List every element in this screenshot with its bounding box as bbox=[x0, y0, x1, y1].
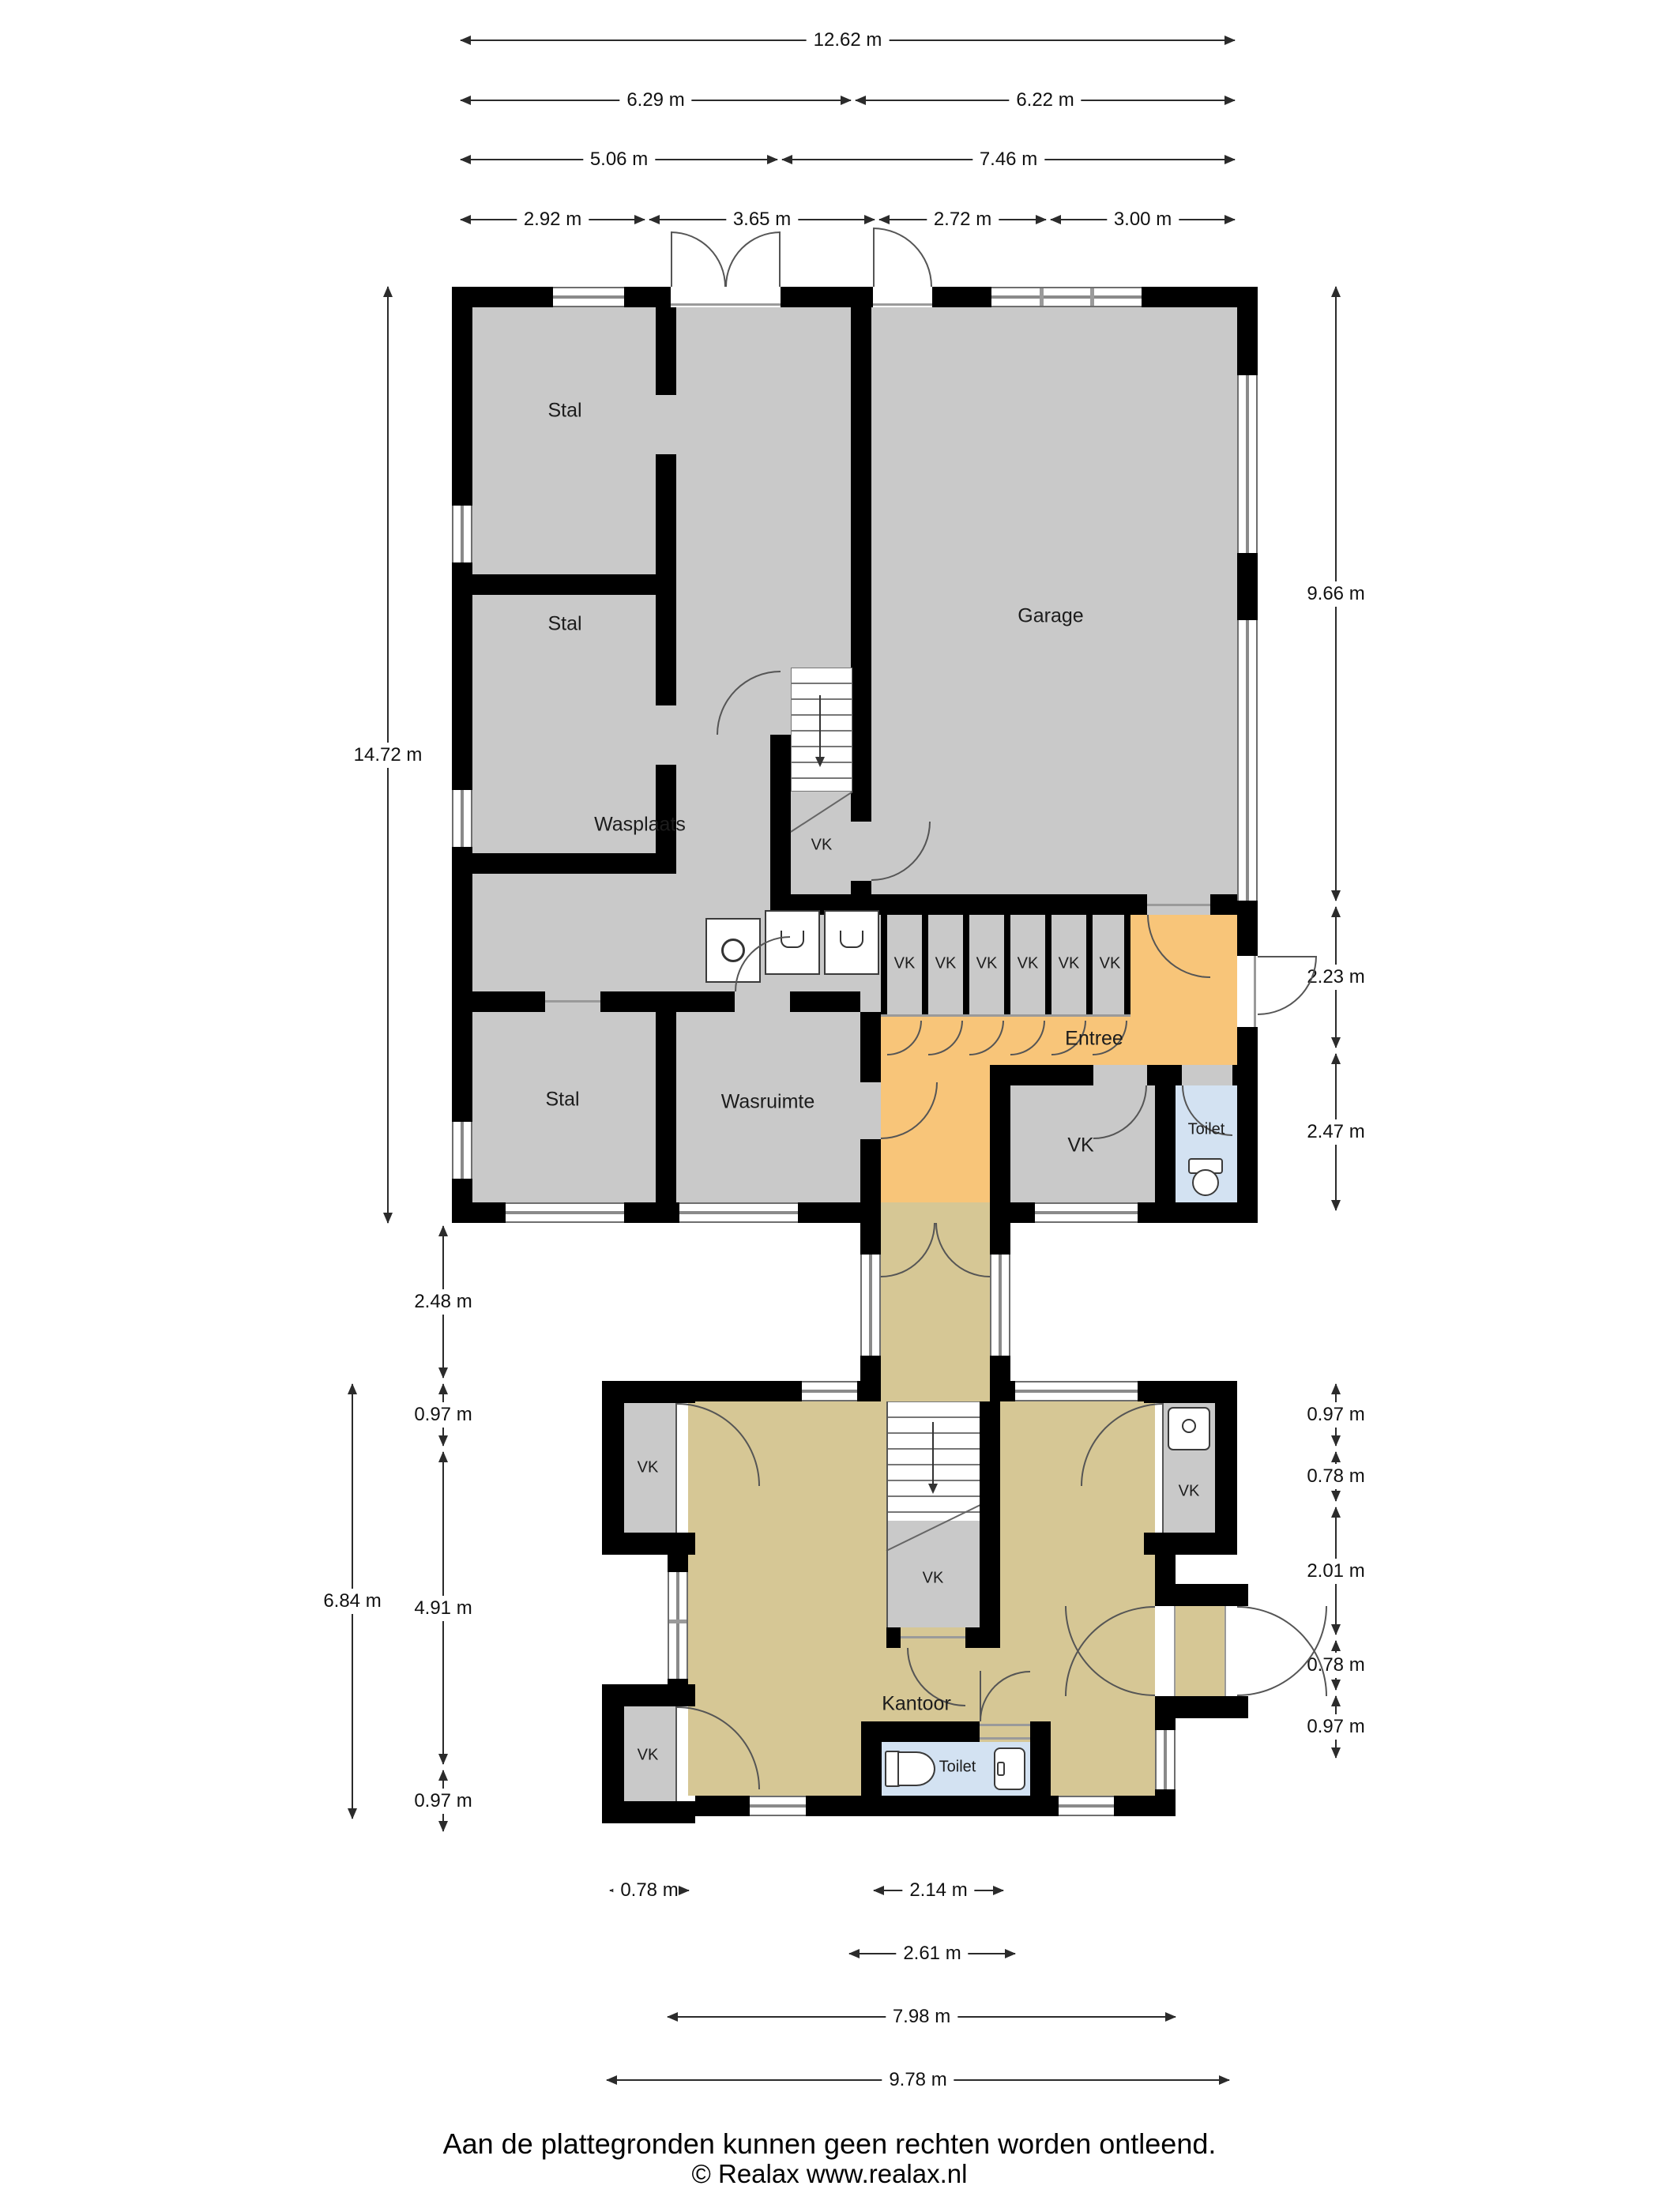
room-label-vk: VK bbox=[638, 1747, 659, 1765]
wall bbox=[602, 1801, 695, 1823]
stair-side-line bbox=[886, 1401, 888, 1627]
room-label-vk: VK bbox=[935, 955, 957, 973]
sink-drain-icon bbox=[1182, 1419, 1196, 1433]
wall bbox=[676, 991, 735, 1012]
dim-label: 2.01 m bbox=[1301, 1559, 1370, 1584]
wall bbox=[1232, 1065, 1237, 1085]
dim-bottom-261: 2.61 m bbox=[849, 1953, 1015, 1954]
dim-label: 2.61 m bbox=[896, 1943, 968, 1965]
dim-label: 0.78 m bbox=[613, 1879, 685, 1902]
dim-right-078a: 0.78 m bbox=[1335, 1452, 1337, 1501]
dim-label: 2.72 m bbox=[927, 209, 999, 231]
wall bbox=[965, 1627, 1000, 1648]
wall bbox=[770, 735, 791, 894]
dim-right-223: 2.23 m bbox=[1335, 907, 1337, 1048]
dim-label: 2.47 m bbox=[1301, 1119, 1370, 1145]
dim-right-966: 9.66 m bbox=[1335, 287, 1337, 901]
dim-bottom-798: 7.98 m bbox=[668, 2016, 1176, 2018]
dim-label: 2.48 m bbox=[408, 1289, 477, 1315]
dim-label: 3.00 m bbox=[1107, 209, 1179, 231]
window bbox=[1237, 620, 1258, 901]
wall bbox=[1030, 1721, 1051, 1816]
wall bbox=[790, 991, 860, 1012]
dim-bottom-214: 2.14 m bbox=[874, 1890, 1003, 1891]
dim-seg2: 3.65 m bbox=[649, 219, 875, 220]
wall bbox=[990, 1085, 1010, 1202]
window bbox=[452, 506, 472, 562]
door-threshold bbox=[1174, 1606, 1176, 1696]
wall bbox=[1237, 553, 1258, 620]
wall bbox=[472, 853, 656, 874]
wall bbox=[851, 307, 871, 822]
door-threshold bbox=[1147, 904, 1210, 906]
door-leaf bbox=[980, 1671, 981, 1721]
tub-icon bbox=[840, 931, 863, 948]
dim-label: 12.62 m bbox=[807, 29, 890, 51]
wall bbox=[472, 574, 656, 595]
room-label-entree: Entree bbox=[1065, 1028, 1123, 1051]
dim-right-201: 2.01 m bbox=[1335, 1507, 1337, 1635]
wall bbox=[656, 454, 676, 705]
room-label-garage: Garage bbox=[1018, 605, 1083, 628]
wall bbox=[990, 1065, 1093, 1085]
wall bbox=[624, 1202, 679, 1223]
door-threshold bbox=[1224, 1606, 1226, 1696]
wall bbox=[963, 915, 969, 1014]
door-arc bbox=[873, 228, 932, 287]
dim-width-a: 5.06 m bbox=[461, 159, 777, 160]
room-label-toilet: Toilet bbox=[1188, 1121, 1225, 1139]
wall bbox=[1045, 915, 1051, 1014]
dim-width-left: 6.29 m bbox=[461, 100, 851, 101]
window bbox=[991, 287, 1142, 307]
wall bbox=[452, 287, 472, 506]
wall bbox=[1144, 1533, 1237, 1555]
window bbox=[750, 1796, 806, 1816]
window bbox=[1155, 1730, 1176, 1789]
room-label-vk: VK bbox=[1059, 955, 1080, 973]
dim-width-right: 6.22 m bbox=[856, 100, 1235, 101]
vestibule-floor bbox=[1176, 1606, 1226, 1696]
wall bbox=[860, 1139, 881, 1202]
wall bbox=[990, 1202, 1035, 1223]
wall bbox=[452, 562, 472, 790]
wall bbox=[781, 287, 873, 307]
wall bbox=[1155, 1718, 1176, 1730]
wall bbox=[1124, 915, 1130, 1014]
wall bbox=[602, 1381, 624, 1555]
dim-right-247: 2.47 m bbox=[1335, 1054, 1337, 1210]
room-label-stal: Stal bbox=[547, 613, 581, 636]
dim-left-684: 6.84 m bbox=[352, 1384, 353, 1819]
dim-left-097b: 0.97 m bbox=[442, 1770, 444, 1831]
dim-label: 0.97 m bbox=[1301, 1714, 1370, 1740]
dim-label: 6.29 m bbox=[619, 89, 691, 111]
dim-bottom-078: 0.78 m bbox=[610, 1890, 689, 1891]
interior-window bbox=[545, 1000, 600, 1003]
door-arc bbox=[671, 231, 726, 287]
wall bbox=[1147, 1065, 1182, 1085]
dim-seg4: 3.00 m bbox=[1051, 219, 1235, 220]
window bbox=[1015, 1381, 1138, 1401]
wall bbox=[1155, 1555, 1176, 1584]
wall bbox=[452, 847, 472, 1122]
room-label-vk: VK bbox=[638, 1459, 659, 1477]
room-label-vk: VK bbox=[1018, 955, 1039, 973]
window bbox=[679, 1202, 798, 1223]
dim-label: 9.66 m bbox=[1301, 581, 1370, 607]
dim-gap: 2.48 m bbox=[442, 1226, 444, 1378]
window-mullion bbox=[669, 1619, 687, 1623]
wall bbox=[980, 1401, 1000, 1648]
room-label-vk: VK bbox=[976, 955, 998, 973]
dim-left-491: 4.91 m bbox=[442, 1452, 444, 1764]
dim-label: 2.92 m bbox=[517, 209, 589, 231]
room-label-stal: Stal bbox=[545, 1089, 579, 1112]
toilet-bowl bbox=[897, 1751, 935, 1786]
exterior-door-arc bbox=[1258, 956, 1317, 1015]
door-threshold bbox=[901, 1636, 965, 1638]
wall bbox=[1210, 894, 1237, 915]
window bbox=[990, 1255, 1010, 1356]
wall bbox=[857, 1381, 881, 1401]
stair-direction-arrow bbox=[932, 1422, 934, 1485]
window bbox=[668, 1572, 688, 1679]
dim-label: 3.65 m bbox=[726, 209, 798, 231]
wall bbox=[1237, 287, 1258, 375]
stair-arrow-head bbox=[815, 757, 825, 767]
toilet-bowl bbox=[1192, 1169, 1219, 1196]
staircase-upper bbox=[791, 668, 852, 792]
dim-height-main: 14.72 m bbox=[387, 287, 389, 1223]
wall bbox=[990, 1381, 1015, 1401]
wall bbox=[886, 1627, 901, 1648]
wall bbox=[1155, 1584, 1248, 1606]
dim-label: 14.72 m bbox=[348, 743, 428, 768]
room-label-vk: VK bbox=[1100, 955, 1121, 973]
wall bbox=[798, 1202, 881, 1223]
dim-label: 0.97 m bbox=[408, 1789, 477, 1814]
dim-label: 7.98 m bbox=[886, 2006, 957, 2028]
wall bbox=[861, 1721, 980, 1742]
dim-left-097a: 0.97 m bbox=[442, 1384, 444, 1446]
door-leaf bbox=[671, 231, 672, 287]
wall bbox=[695, 1796, 750, 1816]
wall bbox=[1155, 1696, 1248, 1718]
room-label-vk: VK bbox=[811, 837, 833, 855]
wall bbox=[656, 1012, 676, 1202]
room-label-vk: VK bbox=[1179, 1483, 1200, 1501]
room-label-vk: VK bbox=[894, 955, 916, 973]
wall bbox=[1237, 901, 1258, 956]
washing-machine-drum-icon bbox=[721, 939, 745, 962]
window-mullion bbox=[1090, 288, 1094, 306]
wall bbox=[602, 1533, 695, 1555]
dim-right-097b: 0.97 m bbox=[1335, 1696, 1337, 1758]
wall bbox=[1114, 1796, 1176, 1816]
dim-label: 6.84 m bbox=[318, 1589, 386, 1614]
wall bbox=[881, 915, 887, 1014]
wall bbox=[1004, 915, 1010, 1014]
dim-right-078b: 0.78 m bbox=[1335, 1641, 1337, 1690]
wall bbox=[1237, 1027, 1258, 1223]
window bbox=[802, 1381, 857, 1401]
room-label-kantoor: Kantoor bbox=[882, 1693, 951, 1716]
window-mullion bbox=[1040, 288, 1044, 306]
dim-label: 4.91 m bbox=[408, 1596, 477, 1621]
room-label-wasplaats: Wasplaats bbox=[594, 814, 686, 837]
wall bbox=[656, 307, 676, 395]
door-threshold bbox=[671, 303, 781, 306]
dim-label: 6.22 m bbox=[1009, 89, 1081, 111]
room-label-toilet: Toilet bbox=[939, 1759, 976, 1777]
room-label-vk: VK bbox=[923, 1570, 944, 1588]
staircase-lower bbox=[886, 1401, 981, 1522]
door-leaf bbox=[873, 228, 875, 287]
dim-right-097a: 0.97 m bbox=[1335, 1384, 1337, 1446]
dim-width-b: 7.46 m bbox=[782, 159, 1235, 160]
dim-label: 9.78 m bbox=[882, 2069, 954, 2091]
wall bbox=[1215, 1381, 1237, 1555]
window bbox=[860, 1255, 881, 1356]
wall bbox=[860, 1012, 881, 1082]
dim-total-width: 12.62 m bbox=[461, 39, 1235, 41]
window bbox=[506, 1202, 624, 1223]
dim-label: 0.78 m bbox=[1301, 1464, 1370, 1489]
door-threshold bbox=[881, 1014, 1130, 1017]
footer-copyright: © Realax www.realax.nl bbox=[0, 2159, 1659, 2189]
door-threshold bbox=[980, 1737, 1030, 1740]
wall bbox=[624, 287, 671, 307]
window bbox=[1035, 1202, 1138, 1223]
door-arc bbox=[725, 231, 781, 287]
wall bbox=[806, 1796, 1059, 1816]
room-label-vk: VK bbox=[1067, 1134, 1093, 1157]
dim-label: 5.06 m bbox=[583, 149, 655, 171]
sink-tap-icon bbox=[997, 1762, 1005, 1776]
wall bbox=[668, 1555, 688, 1572]
door-leaf bbox=[779, 231, 781, 287]
footer-disclaimer: Aan de plattegronden kunnen geen rechten… bbox=[0, 2127, 1659, 2161]
dim-label: 0.97 m bbox=[1301, 1402, 1370, 1428]
wall bbox=[1138, 1202, 1258, 1223]
floorplan-page: 12.62 m 6.29 m 6.22 m 5.06 m 7.46 m 2.92… bbox=[0, 0, 1659, 2212]
door-threshold bbox=[980, 1724, 1030, 1726]
wall bbox=[851, 881, 871, 894]
stair-direction-arrow bbox=[819, 695, 821, 758]
window bbox=[1059, 1796, 1114, 1816]
wall bbox=[1155, 1085, 1176, 1202]
dim-seg1: 2.92 m bbox=[461, 219, 645, 220]
dim-label: 0.97 m bbox=[408, 1402, 477, 1428]
window bbox=[452, 1122, 472, 1179]
dim-label: 7.46 m bbox=[972, 149, 1044, 171]
wall bbox=[922, 915, 928, 1014]
door-leaf bbox=[1258, 956, 1317, 957]
dim-label: 2.14 m bbox=[902, 1879, 974, 1902]
dim-seg3: 2.72 m bbox=[879, 219, 1046, 220]
window bbox=[553, 287, 624, 307]
wall bbox=[472, 991, 545, 1012]
stair-arrow-head bbox=[928, 1484, 938, 1494]
wall bbox=[932, 287, 991, 307]
wall bbox=[600, 991, 676, 1012]
window bbox=[452, 790, 472, 847]
dim-bottom-978: 9.78 m bbox=[607, 2079, 1229, 2081]
window bbox=[1237, 375, 1258, 553]
room-label-wasruimte: Wasruimte bbox=[721, 1091, 815, 1114]
door-threshold bbox=[873, 303, 932, 306]
room-label-stal: Stal bbox=[547, 400, 581, 423]
wall bbox=[1086, 915, 1093, 1014]
wall bbox=[452, 1202, 506, 1223]
door-threshold bbox=[1254, 956, 1256, 1027]
